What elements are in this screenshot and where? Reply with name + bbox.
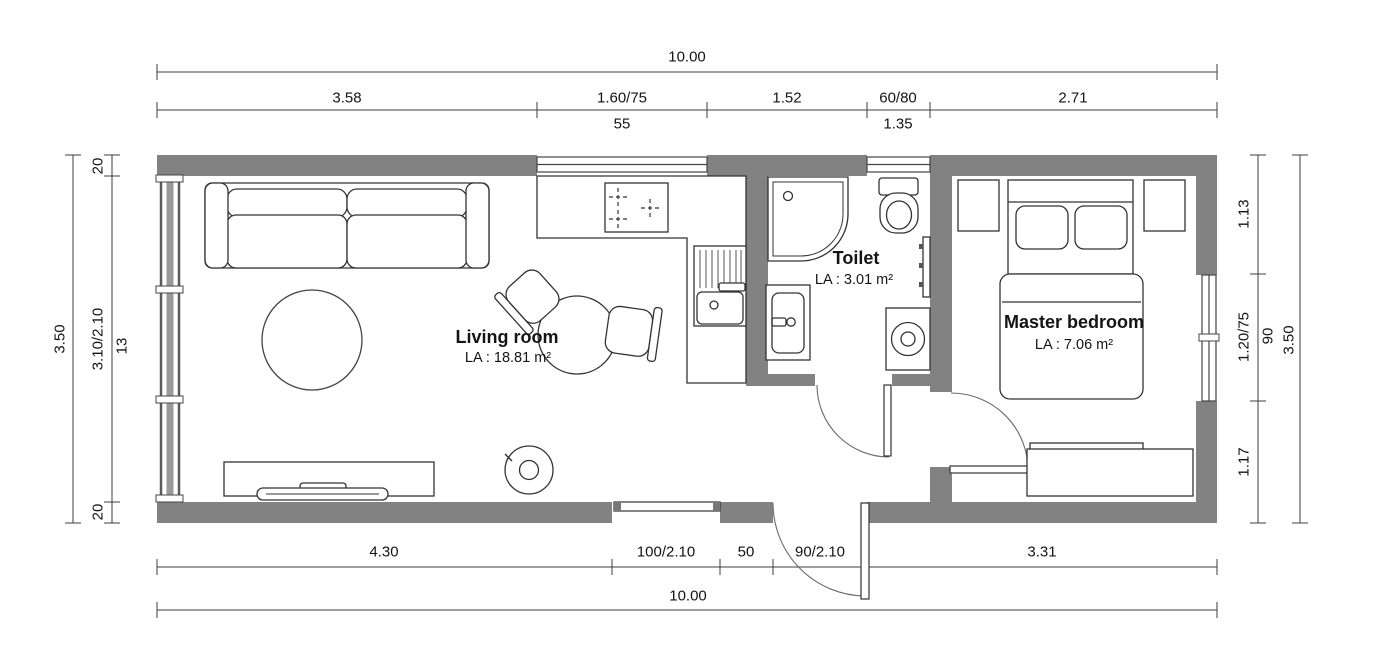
dim-right-seg-1: 1.13	[1237, 199, 1252, 228]
sink-drain	[710, 301, 718, 309]
wc	[879, 178, 918, 233]
toilet-area: LA : 3.01 m²	[815, 273, 893, 288]
dim-top-seg-1: 3.58	[332, 91, 361, 106]
kitchen-window	[537, 157, 707, 172]
dining-chair-right	[603, 301, 662, 362]
dim-bottom-seg-4: 90/2.10	[795, 545, 845, 560]
dim-right-seg-2: 1.20/75	[1237, 312, 1252, 362]
dim-left-seg-1: 20	[91, 158, 106, 175]
dim-top-seg-2: 1.60/75	[597, 91, 647, 106]
nightstand-right	[1144, 180, 1185, 231]
dim-top-seg-5: 2.71	[1058, 91, 1087, 106]
dim-left-total: 3.50	[53, 324, 68, 353]
dim-top-seg-3: 1.52	[772, 91, 801, 106]
sink-faucet	[719, 283, 745, 291]
toilet-window	[867, 157, 930, 172]
radiator	[919, 237, 930, 297]
left-window	[156, 175, 183, 502]
bench	[1027, 449, 1193, 496]
sliding-door	[614, 502, 720, 511]
dim-right-seg-3: 1.17	[1237, 447, 1252, 476]
living-room-label: Living room	[456, 328, 559, 346]
dim-top-total: 10.00	[668, 50, 706, 65]
floor-plan: 10.00 3.58 1.60/75 1.52 60/80 2.71 55 1.…	[0, 0, 1392, 658]
master-bedroom-label: Master bedroom	[1004, 313, 1144, 331]
round-rug	[262, 290, 362, 390]
nightstand-left	[958, 180, 999, 231]
dim-left-seg-2: 3.10/2.10	[91, 308, 106, 371]
sofa	[205, 183, 489, 268]
dim-left-sill: 13	[115, 338, 130, 355]
floor-lamp	[505, 446, 553, 494]
vanity-sink	[766, 285, 810, 360]
dim-right-sill: 90	[1261, 328, 1276, 345]
dim-bottom-seg-5: 3.31	[1027, 545, 1056, 560]
bedroom-door	[950, 393, 1028, 473]
living-room-area: LA : 18.81 m²	[465, 351, 551, 366]
dim-bottom-seg-3: 50	[738, 545, 755, 560]
dim-left-seg-3: 20	[91, 504, 106, 521]
floor-plan-drawing	[0, 0, 1392, 658]
washing-machine	[886, 308, 930, 370]
toilet-label: Toilet	[833, 249, 880, 267]
dim-bottom-seg-1: 4.30	[369, 545, 398, 560]
sink-basin	[697, 292, 743, 324]
dim-bottom-total: 10.00	[669, 589, 707, 604]
bedroom-window	[1199, 275, 1219, 401]
dim-top-sill-1: 55	[614, 117, 631, 132]
toilet-door	[817, 385, 891, 457]
dim-top-sill-2: 1.35	[883, 117, 912, 132]
bed	[1000, 180, 1143, 399]
dim-right-total: 3.50	[1282, 325, 1297, 354]
dim-top-seg-4: 60/80	[879, 91, 917, 106]
dim-bottom-seg-2: 100/2.10	[637, 545, 695, 560]
master-bedroom-area: LA : 7.06 m²	[1035, 338, 1113, 353]
